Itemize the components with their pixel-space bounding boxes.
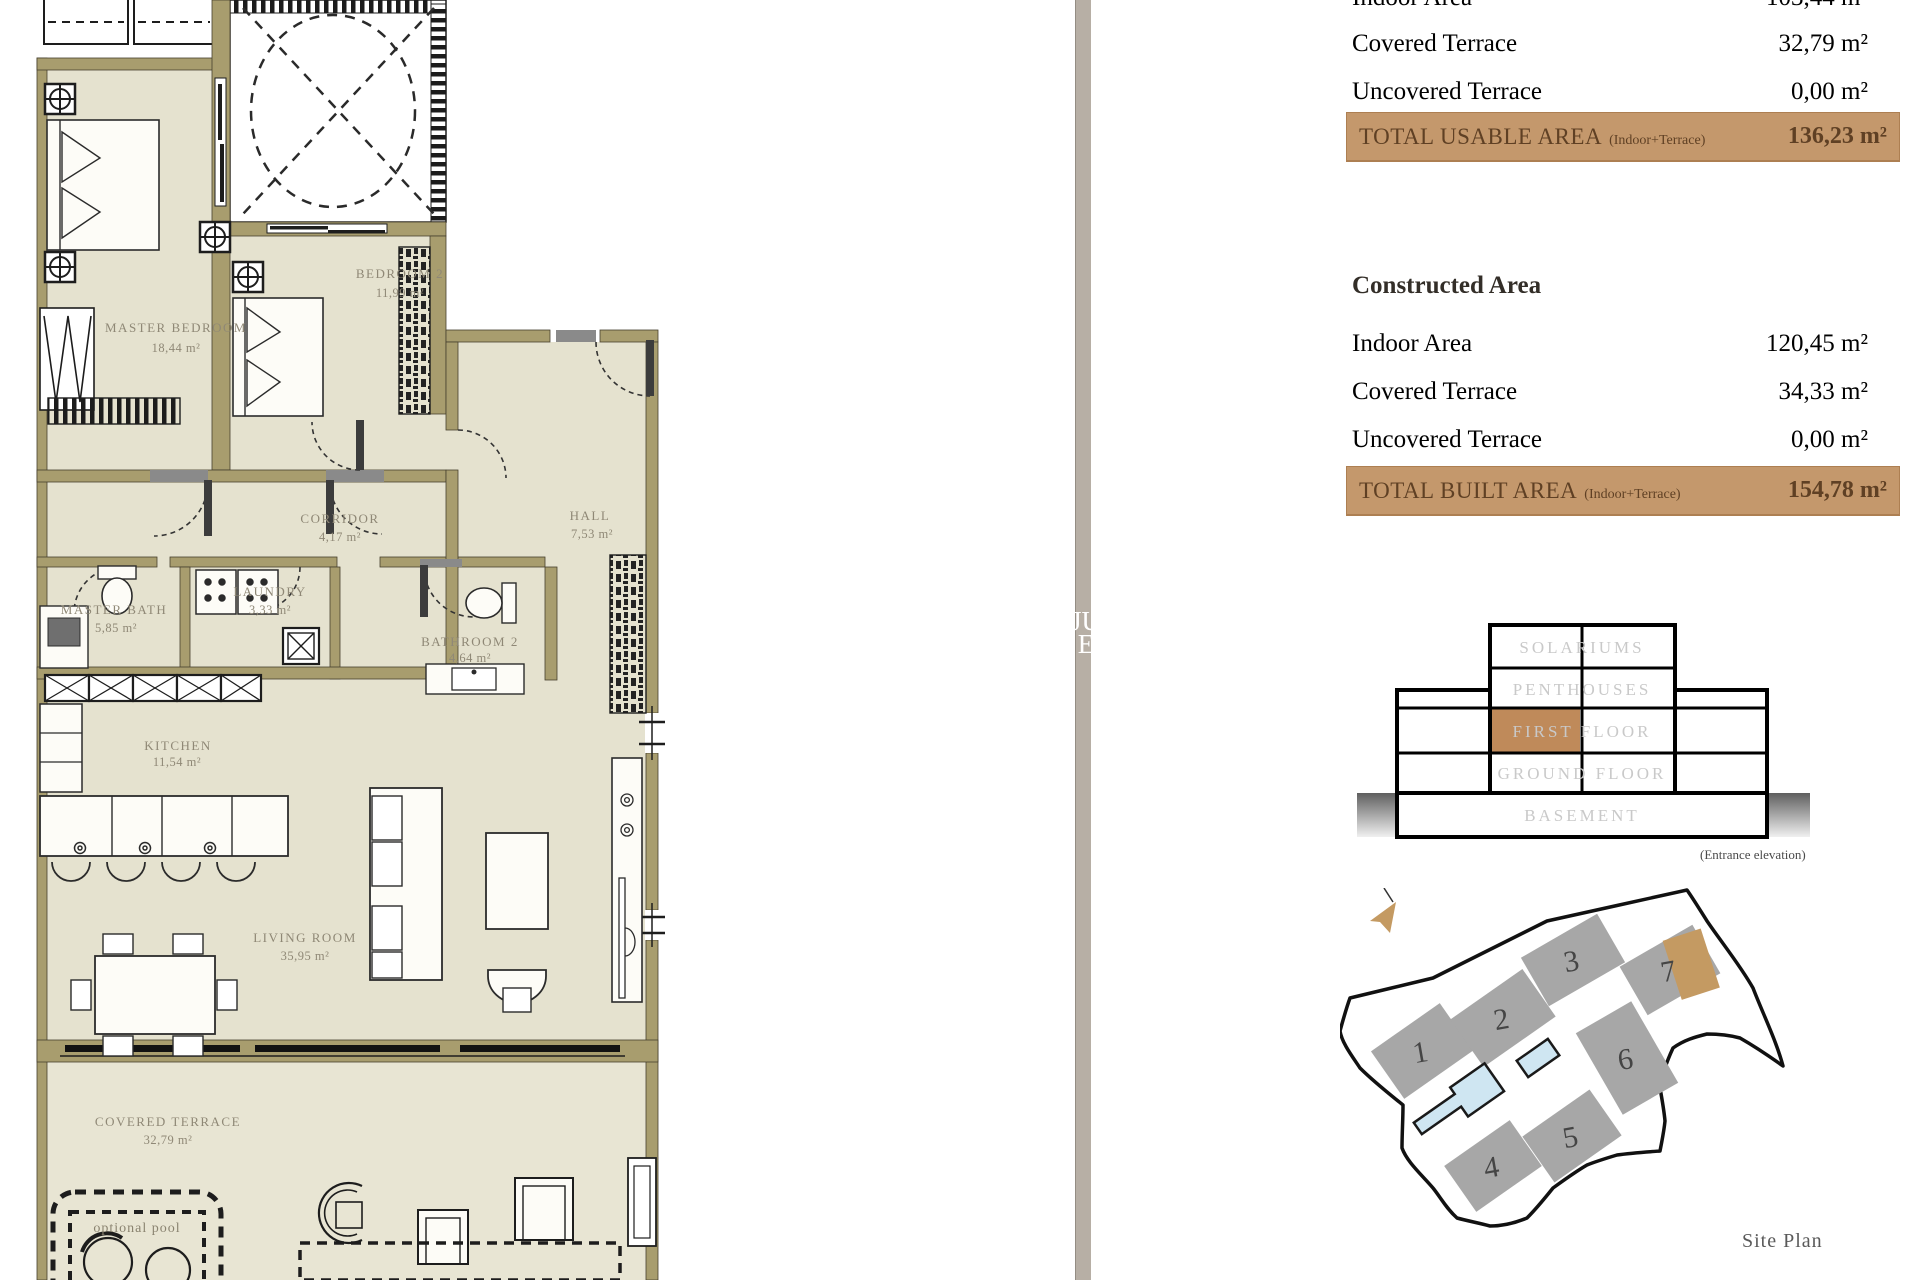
ground-left (1357, 793, 1399, 837)
floor-label-ground-floor: GROUND FLOOR (1498, 764, 1667, 783)
svg-text:3,33 m²: 3,33 m² (249, 603, 291, 617)
svg-text:11,54 m²: 11,54 m² (153, 755, 201, 769)
total-built-row: TOTAL BUILT AREA(Indoor+Terrace) 154,78 … (1346, 466, 1900, 516)
svg-text:11,99 m²: 11,99 m² (376, 286, 424, 300)
floor-label-solariums: SOLARIUMS (1519, 638, 1644, 657)
floor-label-first-floor: FIRST FLOOR (1513, 722, 1652, 741)
floor-label-basement: BASEMENT (1524, 806, 1640, 825)
floor-label-penthouses: PENTHOUSES (1513, 680, 1652, 699)
room-label-master-bath: MASTER BATH (61, 602, 167, 617)
area-row: Covered Terrace 34,33 m² (1352, 378, 1868, 406)
top-closets (44, 0, 214, 44)
room-label-bathroom-2: BATHROOM 2 (421, 634, 519, 649)
watermark: JU E (1066, 610, 1106, 656)
entrance-elevation-caption: (Entrance elevation) (1700, 847, 1806, 863)
svg-text:35,95 m²: 35,95 m² (281, 949, 330, 963)
area-row: Uncovered Terrace 0,00 m² (1352, 78, 1868, 106)
shaft (283, 628, 319, 664)
master-bed (47, 120, 159, 250)
area-row: Covered Terrace 32,79 m² (1352, 30, 1868, 58)
area-row: Uncovered Terrace 0,00 m² (1352, 426, 1868, 454)
room-label-bedroom-2: BEDROOM 2 (356, 266, 444, 281)
svg-text:4,17 m²: 4,17 m² (319, 530, 361, 544)
elevation-diagram: SOLARIUMS PENTHOUSES FIRST FLOOR GROUND … (1352, 618, 1827, 878)
room-label-living-room: LIVING ROOM (253, 930, 357, 945)
room-label-master-bedroom: MASTER BEDROOM (105, 320, 247, 335)
total-usable-row: TOTAL USABLE AREA(Indoor+Terrace) 136,23… (1346, 112, 1900, 162)
svg-text:7,53 m²: 7,53 m² (571, 527, 613, 541)
optional-pool-label: optional pool (93, 1221, 180, 1236)
site-plan-caption: Site Plan (1742, 1230, 1823, 1253)
site-plan: 1 2 3 4 5 6 7 (1340, 888, 1920, 1280)
siteplan-north-line (1384, 888, 1393, 902)
svg-text:18,44 m²: 18,44 m² (152, 341, 201, 355)
brochure-page: MASTER BEDROOM 18,44 m² BEDROOM 2 11,99 … (0, 0, 1920, 1280)
uncovered-patio (230, 0, 446, 222)
room-label-laundry: LAUNDRY (233, 584, 306, 599)
svg-text:5,85 m²: 5,85 m² (95, 621, 137, 635)
area-row: Indoor Area 120,45 m² (1352, 330, 1868, 358)
hall-wardrobe (610, 555, 646, 713)
svg-text:4,64 m²: 4,64 m² (449, 651, 491, 665)
siteplan-north-arrow-icon (1370, 902, 1396, 933)
floorplan: MASTER BEDROOM 18,44 m² BEDROOM 2 11,99 … (0, 0, 700, 1280)
svg-text:32,79 m²: 32,79 m² (144, 1133, 193, 1147)
ground-right (1765, 793, 1810, 837)
bedroom2-bed (233, 298, 323, 416)
constructed-area-heading: Constructed Area (1352, 272, 1541, 300)
room-label-covered-terrace: COVERED TERRACE (95, 1114, 241, 1129)
room-label-hall: HALL (570, 508, 611, 523)
area-row: Indoor Area 103,44 m² (1352, 0, 1868, 12)
room-label-kitchen: KITCHEN (144, 738, 212, 753)
room-label-corridor: CORRIDOR (300, 511, 379, 526)
